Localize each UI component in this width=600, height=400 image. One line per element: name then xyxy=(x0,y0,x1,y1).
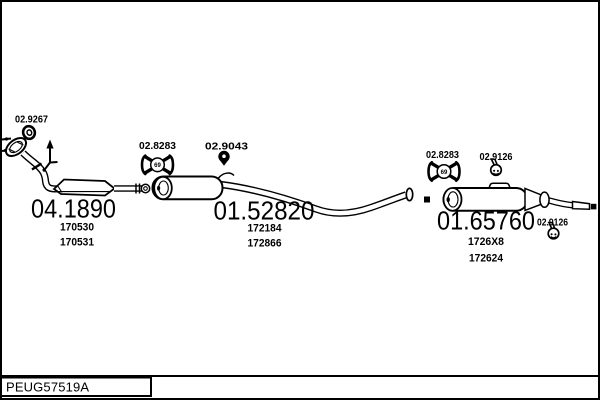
part-number-centre: 01.52820 xyxy=(214,196,315,226)
diagram-code: PEUG57519A xyxy=(6,380,89,395)
fitting-label-hanger-rear: 02.8283 xyxy=(426,149,459,161)
up-arrow-hanger-icon xyxy=(43,140,58,172)
fitting-label-gasket: 02.9267 xyxy=(15,114,48,126)
fitting-label-clamp-tail: 02.9126 xyxy=(537,217,568,229)
part-ref: 1726X8 xyxy=(468,236,504,248)
rubber-hanger-icon-front xyxy=(142,156,173,174)
exhaust-parts-diagram: 69 xyxy=(0,0,600,400)
rubber-hanger-icon-rear xyxy=(429,162,460,180)
part-ref: 170531 xyxy=(60,237,94,249)
pin-hanger-icon xyxy=(218,151,229,166)
mount-point-left xyxy=(424,197,430,203)
front-downpipe xyxy=(23,153,61,189)
tail-clamp-ring xyxy=(540,192,549,207)
tail-pipe-tip xyxy=(573,202,590,210)
fitting-label-hanger-mid: 02.9043 xyxy=(205,141,248,153)
fitting-label-hanger-front: 02.8283 xyxy=(139,140,176,152)
mount-point-right xyxy=(591,204,597,210)
part-ref: 172624 xyxy=(469,253,504,265)
part-number-rear: 01.65760 xyxy=(437,206,535,236)
diagram-canvas: 69 xyxy=(0,0,600,400)
part-ref: 170530 xyxy=(60,222,94,234)
silencer-bracket xyxy=(219,173,235,178)
fitting-label-clamp-rear-top: 02.9126 xyxy=(480,151,513,163)
part-ref: 172866 xyxy=(248,238,282,250)
coupling-ring xyxy=(141,184,149,192)
part-ref: 172184 xyxy=(248,223,283,235)
connector-pipe xyxy=(114,184,150,194)
flange-bolt xyxy=(5,137,8,140)
part-number-front: 04.1890 xyxy=(31,194,116,224)
pipe-end-flare xyxy=(406,188,412,200)
